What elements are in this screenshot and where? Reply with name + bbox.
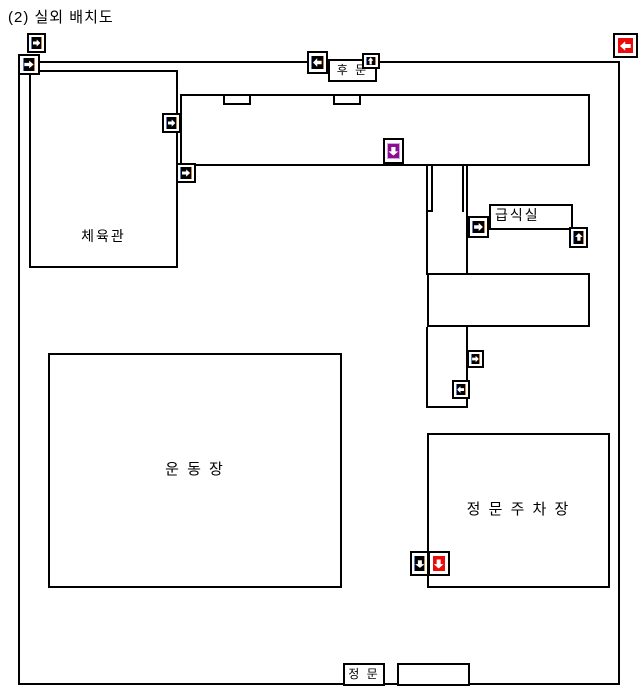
camera-direction-right-arrow-icon [33, 39, 41, 47]
camera-direction-up-arrow-icon [574, 234, 582, 242]
camera-square [387, 143, 399, 159]
corridor-wall [426, 159, 428, 275]
camera-direction-right-arrow-icon [474, 223, 483, 232]
camera-direction-up-arrow-icon [368, 57, 374, 64]
camera-square [456, 384, 466, 395]
room-annex [427, 273, 590, 327]
room-label-gym: 체육관 [81, 229, 126, 244]
camera-square [414, 556, 425, 571]
camera-direction-right-arrow-icon [182, 169, 190, 177]
camera-direction-right-arrow-icon [24, 60, 33, 68]
camera-direction-right-arrow-icon [472, 356, 479, 363]
room-entrance-notch-1 [223, 94, 251, 105]
room-gym: 체육관 [29, 70, 178, 268]
camera-square [471, 354, 480, 364]
room-label-parking: 정 문 주 차 장 [467, 502, 571, 519]
camera-square [366, 57, 376, 66]
camera-direction-left-arrow-icon [620, 41, 631, 51]
room-entrance-notch-2 [333, 94, 361, 105]
cam-back-gate-left-icon [307, 51, 328, 74]
camera-direction-down-arrow-icon [434, 559, 444, 568]
cam-parking-red-icon [428, 551, 450, 576]
camera-square [433, 556, 446, 571]
cam-cafeteria-right-icon [569, 227, 588, 248]
cam-parking-black-icon [410, 551, 429, 576]
camera-square [31, 37, 42, 49]
cam-gym-lower-icon [176, 163, 196, 183]
cam-back-gate-top-icon [362, 53, 380, 69]
camera-direction-down-arrow-icon [388, 147, 398, 156]
site-plan: 체육관후 문급식실운 동 장정 문 주 차 장정 문 [0, 0, 643, 697]
room-label-playground: 운 동 장 [165, 462, 225, 479]
cam-corridor-lower-icon [452, 380, 470, 399]
cam-gym-upper-icon [162, 113, 181, 133]
camera-direction-right-arrow-icon [168, 119, 176, 127]
camera-direction-down-arrow-icon [415, 560, 425, 568]
corridor-wall [462, 166, 464, 212]
cam-cafeteria-left-icon [468, 216, 489, 238]
room-label-cafeteria: 급식실 [495, 208, 540, 223]
camera-square [618, 38, 633, 53]
camera-direction-left-arrow-icon [313, 58, 322, 67]
cam-top-left-lower-icon [18, 54, 40, 75]
corridor-wall [426, 210, 433, 212]
cam-corridor-upper-icon [467, 350, 484, 368]
camera-square [180, 167, 192, 179]
camera-direction-left-arrow-icon [457, 386, 464, 393]
camera-square [472, 221, 484, 234]
room-main-gate: 정 문 [343, 663, 385, 686]
room-parking: 정 문 주 차 장 [427, 433, 610, 588]
camera-square [573, 231, 584, 243]
room-label-main-gate: 정 문 [348, 668, 379, 681]
room-cafeteria: 급식실 [489, 204, 573, 230]
cam-main-building-icon [383, 138, 404, 164]
cam-top-right-icon [613, 33, 638, 58]
room-playground: 운 동 장 [48, 353, 342, 588]
camera-square [23, 58, 36, 70]
room-gate-side-box [397, 663, 470, 686]
cam-top-left-upper-icon [27, 33, 46, 53]
corridor-wall [426, 406, 468, 408]
camera-square [311, 56, 323, 70]
corridor-wall [431, 166, 433, 212]
camera-square [166, 117, 177, 129]
corridor-wall [426, 327, 428, 408]
